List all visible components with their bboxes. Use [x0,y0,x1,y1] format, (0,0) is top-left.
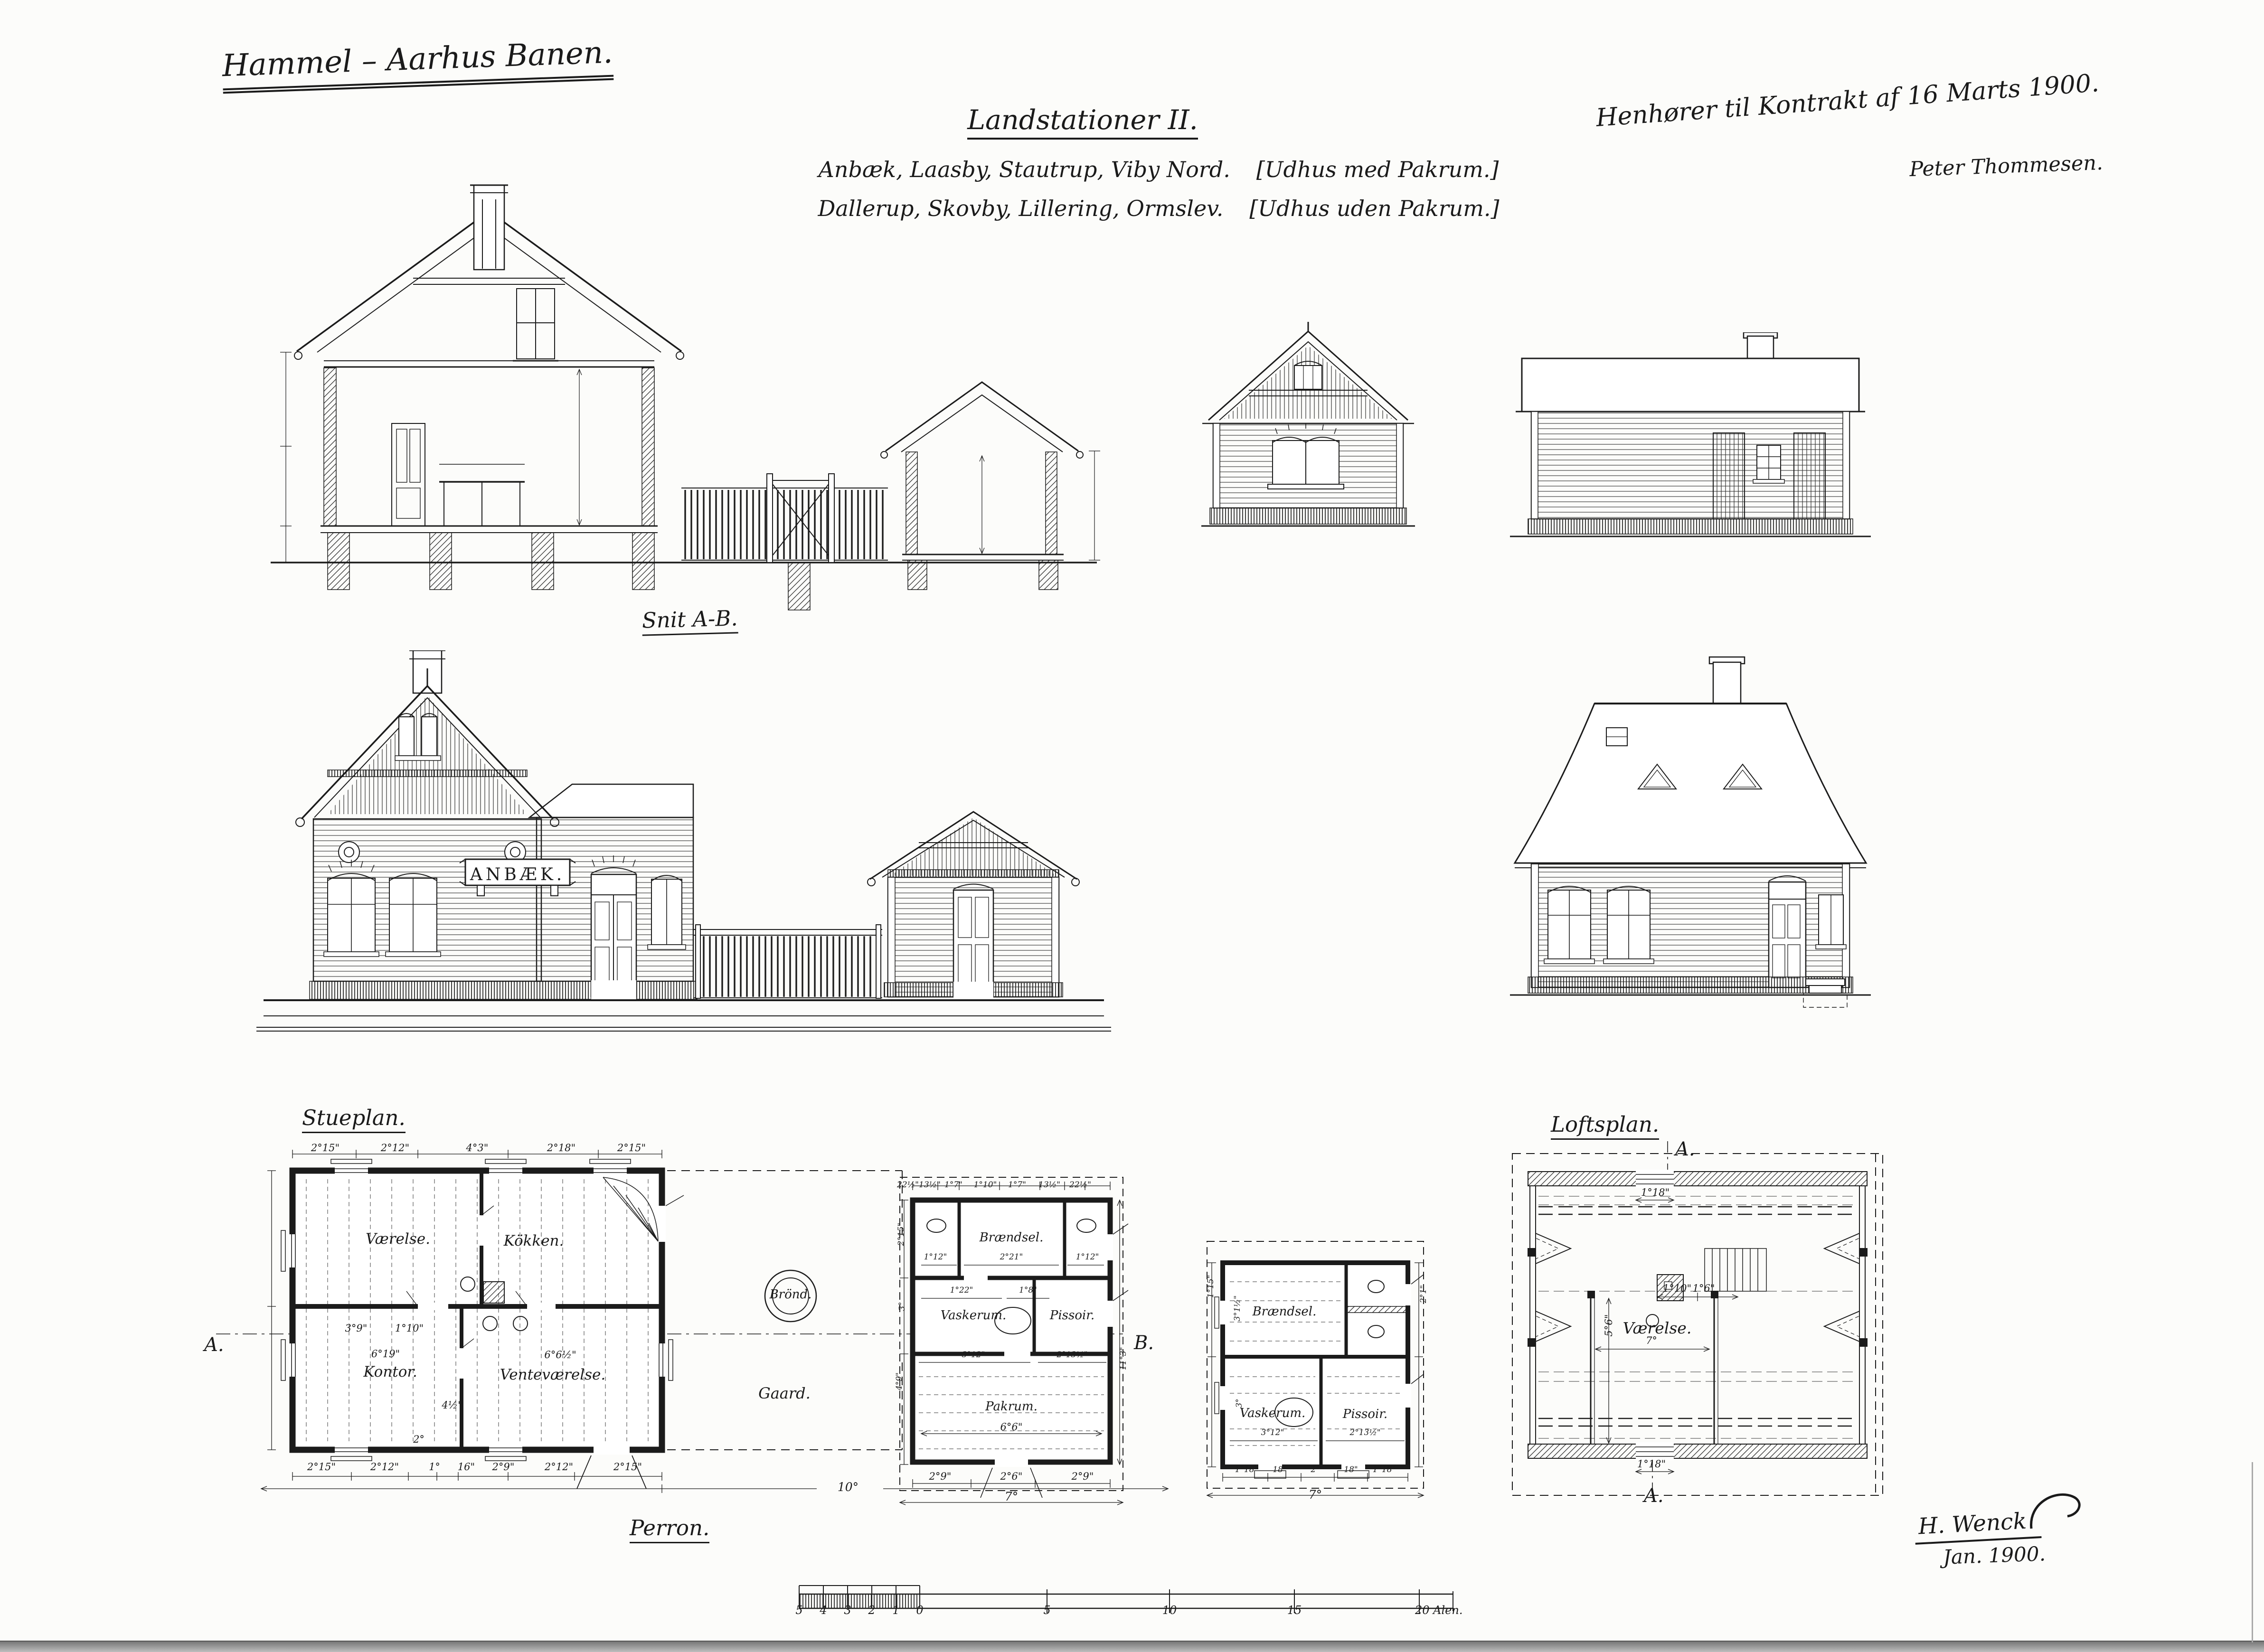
platform-fence [693,925,882,998]
scale-tick: 3 [844,1604,851,1617]
dim-label: 6°6½" [544,1349,576,1361]
scale-tick: 0 [916,1604,923,1617]
dim-label: 2°15" [617,1142,646,1154]
scale-tick: 5 [795,1604,802,1617]
section-outhouse [881,382,1100,590]
outhouse-front-elevation [868,812,1079,998]
gable-louvre [1294,366,1322,389]
dim-label: 2° [413,1434,424,1445]
dim-label: 2°9" [1072,1471,1094,1482]
small-window [1816,895,1846,949]
station-sign-text: ANBÆK. [470,865,565,884]
station-window [386,873,441,957]
station-rear-elevation [1491,650,1890,1035]
room-label-pissoir: Pissoir. [1343,1407,1387,1421]
scale-tick: 2 [868,1604,875,1617]
architect-signature: H. Wenck [1914,1507,2041,1545]
contract-note: Henhører til Kontrakt af 16 Marts 1900. [1595,69,2100,132]
dim-label: 1°18" [1235,1465,1258,1474]
dim-label: 1°6" [1693,1283,1715,1294]
dim-label: 22½" [897,1180,919,1190]
dim-label: 1° [429,1461,440,1473]
room-label-kokken: Kökken. [504,1232,564,1249]
drawing-title-wrap: Landstationer II. [893,104,1273,136]
well-label: Brönd. [770,1287,812,1302]
door-steps [1803,979,1847,1007]
yard-label: Gaard. [758,1384,811,1402]
dim-label: 4°3" [466,1142,489,1154]
room-label-vaskerum: Vaskerum. [1240,1406,1305,1420]
dim-label: 16" [458,1461,475,1473]
room-label-vaerelse-loft: Værelse. [1623,1319,1692,1337]
station-window [648,875,686,949]
dim-label: 3°1½" [1233,1295,1242,1321]
dim-label: 22½" [1069,1180,1091,1190]
dim-label: 5°6" [1603,1314,1614,1337]
dim-label: 2°6" [1000,1471,1023,1482]
dim-label: 6°6" [1000,1421,1023,1433]
room-label-kontor: Kontor. [363,1363,417,1380]
dim-label: 2°9" [492,1461,515,1473]
section-marker-b: B. [1134,1332,1154,1354]
station-door [591,855,636,997]
chimney [1747,336,1773,358]
room-label-vaskerum: Vaskerum. [941,1308,1006,1323]
dim-label: 1°18" [1637,1458,1666,1470]
dim-label: 18" [1273,1465,1286,1474]
outhouse-plan-without-pakrum [1201,1230,1429,1505]
scale-tick: 1 [892,1604,899,1617]
scale-unit: 20 Alen. [1415,1604,1462,1617]
dim-label: 7° [1309,1488,1322,1502]
section-marker-bottom: A. [1644,1485,1664,1507]
room-label-ventevaerelse: Venteværelse. [500,1366,606,1383]
dim-label: 2°15" [613,1461,642,1473]
section-chimney [474,185,504,270]
scan-edge-bottom [0,1641,2264,1652]
scale-tick: 5 [1043,1604,1050,1617]
attic-plan [1500,1135,1895,1519]
dim-label: 3° [897,1302,907,1311]
chimney [1713,662,1741,704]
dim-label: 1°18" [1641,1187,1670,1198]
dim-label: 1°7" [944,1180,962,1190]
section-label: Snit A-B. [641,605,738,636]
dim-label: 1°12" [924,1252,947,1262]
perron-label: Perron. [630,1515,709,1543]
gable-window [422,717,437,756]
dim-label: 1°22" [950,1286,973,1295]
sheet-title: Hammel – Aarhus Banen. [222,35,614,94]
outhouse-side-elevation [1510,332,1871,555]
stueplan-label: Stueplan. [302,1105,406,1133]
stations-note-2: [Udhus uden Pakrum.] [1249,196,1499,221]
dim-label: 1°10" [974,1180,997,1190]
dim-label: 2°12" [381,1142,409,1154]
dim-label: 2°18" [547,1142,575,1154]
dim-label: 1°10" [1663,1283,1691,1294]
section-marker-a: A. [204,1334,224,1356]
dim-label: 2°12" [545,1461,573,1473]
station-door [1769,876,1806,987]
room-label-pissoir: Pissoir. [1050,1308,1094,1323]
dim-label: 2°15" [307,1461,336,1473]
stations-note-1: [Udhus med Pakrum.] [1256,157,1499,182]
station-window [1604,886,1654,964]
door [1713,433,1745,519]
outhouse-gable-elevation [1201,318,1415,546]
drawing-title: Landstationer II. [967,104,1198,140]
gable-window [399,717,414,756]
roof [1522,358,1859,412]
cross-section-drawing [256,180,1111,622]
roof [1515,704,1866,863]
scale-tick: 4 [820,1604,827,1617]
dim-label: 2°1" [1419,1285,1428,1303]
room-label-vaerelse: Værelse. [366,1230,430,1248]
dim-label: 13½" [919,1180,941,1190]
scale-tick: 15 [1287,1604,1302,1617]
dim-label: 13½" [1038,1180,1060,1190]
dim-label: 3°12" [962,1350,985,1360]
dim-label: 11°3" [1119,1347,1128,1370]
dim-label: 1°7" [1008,1180,1026,1190]
dim-label: 4½" [442,1399,462,1411]
dim-label: 2° [1311,1465,1320,1474]
rosette-ornament [339,842,359,863]
signature-flourish [2027,1489,2093,1531]
dim-label: 7° [1646,1335,1657,1346]
scan-edge-right [2252,1462,2253,1643]
scale-tick: 10 [1162,1604,1177,1617]
dim-label: 10° [838,1480,858,1494]
drawing-sheet: Hammel – Aarhus Banen. Landstationer II.… [0,0,2264,1652]
dim-label: 2°21" [1000,1252,1023,1262]
scale-bar [779,1581,1472,1643]
signature-date: Jan. 1900. [1943,1542,2046,1569]
outhouse-door [953,890,993,997]
dim-label: 1°10" [395,1323,424,1334]
dim-label: 3° [1235,1399,1244,1408]
contract-signer: Peter Thommesen. [1887,150,2125,182]
plan-chimney [483,1282,504,1303]
dim-label: 18" [1344,1465,1358,1474]
dim-label: 1°12" [1076,1252,1099,1262]
station-front-elevation [256,650,1111,1035]
room-label-pakrum: Pakrum. [985,1399,1038,1414]
dim-label: 4°9" [895,1372,904,1390]
dim-label: 2°9" [929,1471,952,1482]
dim-label: 7° [1005,1490,1018,1503]
room-label-braendsel: Brændsel. [980,1230,1044,1245]
stations-list-1: Anbæk, Laasby, Stautrup, Viby Nord. [819,157,1230,182]
section-marker-top: A. [1675,1138,1695,1160]
dim-label: 2°13½" [1349,1428,1380,1437]
section-fence-and-gate [681,474,888,610]
outhouse-plan-with-pakrum [893,1158,1130,1524]
dim-label: 1°18" [1373,1465,1396,1474]
dim-label: 1°8" [1019,1286,1037,1295]
dim-label: 3°12" [1261,1428,1284,1437]
dim-label: 3°9" [345,1323,368,1334]
dim-label: 2°13½" [1057,1350,1087,1360]
dim-label: 2°12" [370,1461,399,1473]
dim-label: 2°15" [311,1142,340,1154]
yard-fence [667,1171,902,1450]
room-label-braendsel: Brændsel. [1253,1305,1317,1319]
dim-label: 6°19" [371,1348,400,1360]
stations-line-1: Anbæk, Laasby, Stautrup, Viby Nord. [Udh… [769,157,1548,182]
door [1794,433,1825,519]
dim-label: 2°15" [896,1223,906,1246]
station-window [1544,886,1594,964]
dim-label: 1°15" [1206,1275,1216,1298]
